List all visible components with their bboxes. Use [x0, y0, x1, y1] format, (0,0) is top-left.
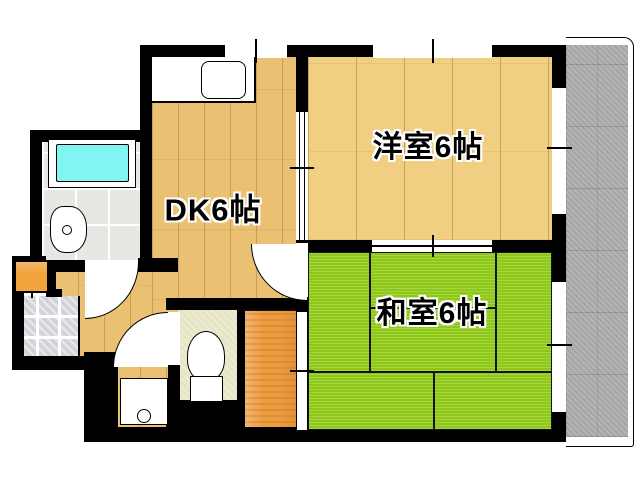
- toilet-door-gap: [166, 312, 180, 365]
- wall-genkan-corner: [46, 289, 62, 297]
- japanese-room-floor: [308, 252, 552, 430]
- western-top-window-tick: [432, 39, 434, 63]
- wall-dk-left: [140, 45, 152, 272]
- washbasin-drain-icon: [62, 225, 72, 235]
- toilet-bowl: [187, 331, 225, 381]
- western-balcony-window: [552, 88, 566, 214]
- tatami-mat: [496, 252, 552, 372]
- tatami-mat: [434, 372, 552, 430]
- toilet-tank: [190, 376, 223, 402]
- genkan-tile: [61, 318, 79, 337]
- sliding-door-panel-line: [304, 112, 305, 240]
- genkan-tile: [39, 296, 57, 315]
- bathtub: [56, 144, 129, 182]
- japanese-balcony-window: [552, 282, 566, 412]
- japanese-balcony-window-tick: [547, 344, 572, 346]
- western-balcony-window-tick: [547, 147, 572, 149]
- sliding-door-panel-line: [299, 112, 300, 240]
- wall-toilet-top: [166, 298, 308, 310]
- western-japanese-door-tick: [432, 235, 434, 257]
- tatami-mat: [308, 252, 370, 372]
- dk-room-label: DK6帖: [164, 185, 261, 230]
- kitchen-sink: [201, 61, 246, 99]
- wall-bath-left: [30, 130, 42, 272]
- floorplan: DK6帖 洋室6帖 和室6帖: [0, 0, 640, 480]
- sliding-door-tick: [290, 167, 314, 169]
- dk-western-sliding-door: [296, 112, 308, 240]
- wall-japanese-bottom: [296, 430, 566, 442]
- genkan-tile: [61, 296, 79, 315]
- genkan-tile: [39, 318, 57, 337]
- balcony: [566, 45, 628, 437]
- genkan-tile-floor: [18, 296, 79, 358]
- tatami-mat: [308, 372, 434, 430]
- wall-bath-bottom-right: [138, 258, 178, 272]
- western-room-label: 洋室6帖: [373, 122, 484, 166]
- washing-machine-drain-icon: [137, 409, 151, 423]
- wall-toilet-bottom: [166, 400, 245, 432]
- genkan-step-edge: [78, 296, 80, 358]
- shoe-cabinet: [16, 262, 47, 291]
- closet-fusuma-tick: [290, 370, 314, 372]
- wall-top: [140, 45, 566, 57]
- japanese-room-label: 和室6帖: [377, 288, 488, 332]
